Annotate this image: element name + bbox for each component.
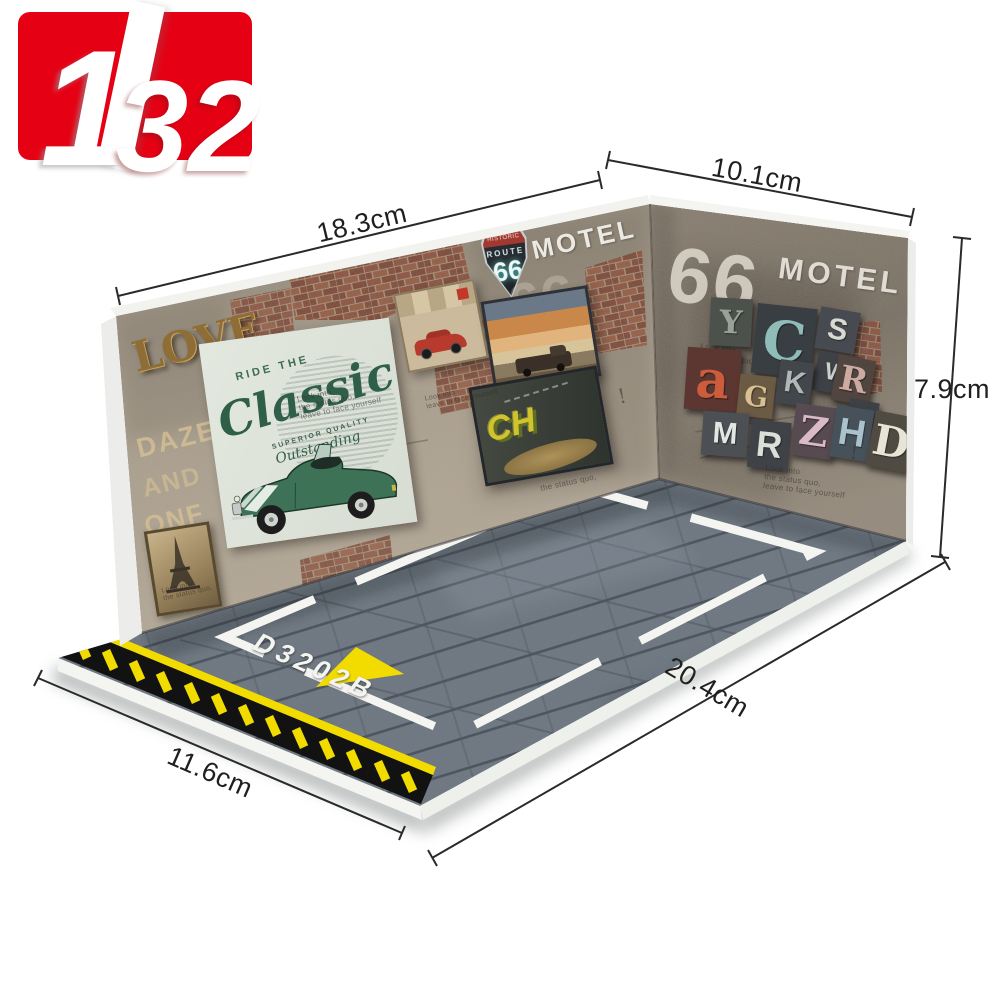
scale-logo: 1 32	[18, 12, 252, 160]
product-image: 1 32 18.3cm 10.1cm 7.9cm 20.4cm 11.6cm L…	[0, 0, 1000, 1000]
scale-denominator: 32	[116, 61, 261, 191]
dimension-height: 7.9cm	[882, 374, 1000, 405]
